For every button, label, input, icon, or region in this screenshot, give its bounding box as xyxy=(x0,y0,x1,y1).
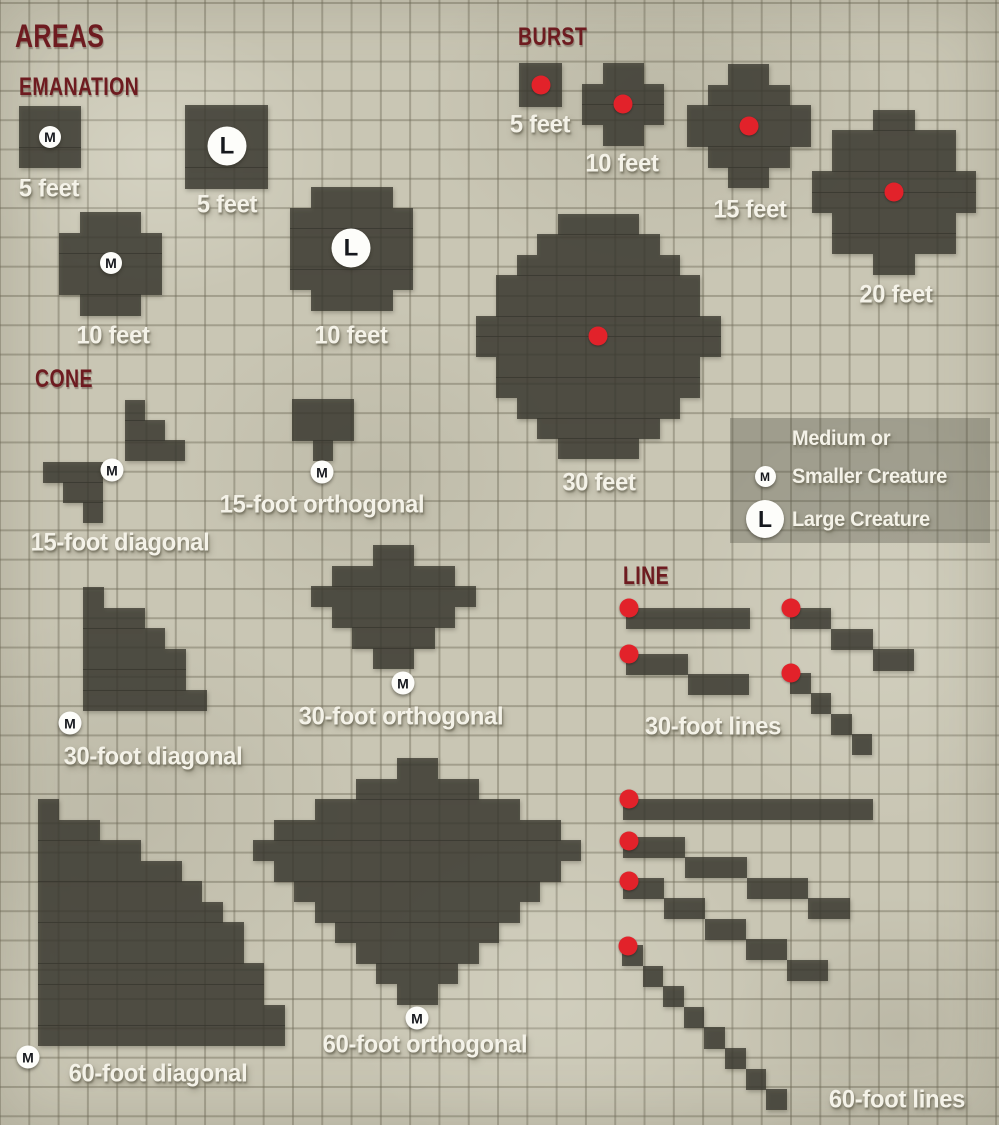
medium-creature-token-icon: M xyxy=(392,672,415,695)
section-header-areas: AREAS xyxy=(15,20,104,52)
cone-15ft-diagonal-lower-row xyxy=(83,502,103,523)
cone-30ft-diagonal-row xyxy=(83,649,186,670)
cone-60ft-diagonal-row xyxy=(38,943,244,964)
cone-60ft-orthogonal-row xyxy=(397,984,438,1005)
cone-30ft-orthogonal-label: 30-foot orthogonal xyxy=(299,705,504,730)
emanation-10ft-large-row xyxy=(290,269,413,290)
creature-size-legend: Medium or M Smaller Creature L Large Cre… xyxy=(730,418,990,543)
cone-15ft-diagonal-upper-row xyxy=(125,440,185,461)
medium-creature-token-icon: M xyxy=(17,1046,40,1069)
medium-creature-token-icon: M xyxy=(101,459,124,482)
emanation-10ft-medium-row xyxy=(80,294,142,315)
cone-60ft-orthogonal-row xyxy=(376,963,458,984)
line-60ft-stepped-3-row xyxy=(808,898,849,919)
emanation-10ft-large-row xyxy=(311,290,393,311)
cone-60ft-diagonal-row xyxy=(38,1005,285,1026)
burst-30ft-origin-dot-icon xyxy=(589,327,608,346)
burst-30ft-row xyxy=(496,357,700,378)
legend-row: M Smaller Creature xyxy=(730,458,990,495)
cone-30ft-diagonal-row xyxy=(83,669,186,690)
line-60ft-diagonal-row xyxy=(766,1089,787,1110)
large-creature-token-icon: L xyxy=(332,229,371,268)
emanation-5ft-medium-row xyxy=(19,106,81,127)
section-header-emanation: EMANATION xyxy=(19,75,139,100)
medium-creature-token-icon: M xyxy=(755,466,776,487)
cone-15ft-diagonal-upper-row xyxy=(125,420,165,441)
cone-15ft-diagonal-upper-row xyxy=(125,400,145,421)
cone-60ft-diagonal-row xyxy=(38,902,223,923)
emanation-10ft-large-row xyxy=(311,187,393,208)
line-30ft-double-step-row xyxy=(831,629,872,650)
cone-30ft-orthogonal-row xyxy=(332,607,456,628)
cone-30ft-diagonal-row xyxy=(83,690,207,711)
line-60ft-diagonal-row xyxy=(663,986,684,1007)
cone-60ft-diagonal-row xyxy=(38,984,264,1005)
lines-30ft-label: 30-foot lines xyxy=(645,715,781,740)
medium-creature-token-icon: M xyxy=(406,1007,429,1030)
burst-15ft-origin-dot-icon xyxy=(739,116,758,135)
burst-20ft-row xyxy=(832,213,956,234)
emanation-10ft-medium-row xyxy=(80,212,142,233)
burst-30ft-row xyxy=(517,255,680,276)
cone-15ft-orthogonal-row xyxy=(313,440,334,461)
section-header-cone: CONE xyxy=(35,367,93,392)
line-30ft-diagonal-origin-dot-icon xyxy=(782,664,801,683)
cone-60ft-orthogonal-row xyxy=(356,779,479,800)
legend-token-slot: L xyxy=(744,500,786,538)
large-creature-token-icon: L xyxy=(746,500,784,538)
burst-30ft-label: 30 feet xyxy=(562,471,635,496)
emanation-10ft-medium-row xyxy=(59,274,162,295)
cone-60ft-orthogonal-label: 60-foot orthogonal xyxy=(323,1033,528,1058)
line-30ft-diagonal-row xyxy=(811,693,832,714)
cone-60ft-orthogonal-row xyxy=(397,758,438,779)
line-60ft-diagonal-row xyxy=(684,1007,705,1028)
cone-60ft-orthogonal-row xyxy=(315,799,520,820)
cone-60ft-orthogonal-row xyxy=(356,943,479,964)
burst-30ft-row xyxy=(558,438,640,459)
line-60ft-stepped-3-row xyxy=(747,878,809,899)
cone-15ft-diagonal-lower-row xyxy=(63,482,103,503)
burst-15ft-row xyxy=(708,146,790,167)
cone-60ft-orthogonal-row xyxy=(274,861,561,882)
cone-30ft-orthogonal-row xyxy=(373,545,414,566)
line-60ft-stepped-2-row xyxy=(787,960,828,981)
emanation-5ft-large-row xyxy=(185,105,268,126)
burst-20ft-row xyxy=(832,130,956,151)
cone-60ft-orthogonal-row xyxy=(315,902,520,923)
line-60ft-stepped-3-row xyxy=(685,857,747,878)
cone-30ft-orthogonal-row xyxy=(373,648,414,669)
burst-20ft-row xyxy=(873,110,914,131)
medium-creature-token-icon: M xyxy=(59,712,82,735)
legend-row: Medium or xyxy=(730,418,990,458)
burst-15ft-row xyxy=(708,85,790,106)
section-header-burst: BURST xyxy=(518,25,587,50)
line-30ft-straight-row xyxy=(626,608,750,629)
cone-60ft-diagonal-row xyxy=(38,799,59,820)
emanation-5ft-large-row xyxy=(185,167,268,188)
burst-20ft-origin-dot-icon xyxy=(885,183,904,202)
medium-creature-token-icon: M xyxy=(39,126,61,148)
cone-30ft-diagonal-row xyxy=(83,628,165,649)
cone-30ft-diagonal-label: 30-foot diagonal xyxy=(64,745,243,770)
burst-15ft-row xyxy=(728,167,769,188)
burst-30ft-row xyxy=(537,418,659,439)
burst-15ft-label: 15 feet xyxy=(713,198,786,223)
medium-token-letter: M xyxy=(760,470,770,484)
large-creature-token-icon: L xyxy=(208,127,247,166)
cone-60ft-orthogonal-row xyxy=(253,840,581,861)
emanation-5ft-medium-row xyxy=(19,147,81,168)
cone-60ft-diagonal-row xyxy=(38,820,100,841)
burst-20ft-row xyxy=(873,254,914,275)
cone-60ft-diagonal-row xyxy=(38,963,264,984)
burst-10ft-label: 10 feet xyxy=(585,152,658,177)
legend-large-label: Large Creature xyxy=(792,509,930,530)
section-header-line: LINE xyxy=(623,564,669,589)
line-60ft-stepped-2-row xyxy=(664,898,705,919)
line-60ft-stepped-2-row xyxy=(746,939,787,960)
cone-30ft-orthogonal-row xyxy=(332,566,456,587)
cone-15ft-orthogonal-row xyxy=(292,399,354,420)
burst-30ft-row xyxy=(517,398,680,419)
burst-5ft-label: 5 feet xyxy=(510,113,570,138)
burst-5ft-origin-dot-icon xyxy=(531,75,550,94)
cone-15ft-orthogonal-row xyxy=(292,420,354,441)
burst-10ft-row xyxy=(603,63,644,84)
large-token-letter: L xyxy=(758,506,772,533)
line-60ft-stepped-2-row xyxy=(705,919,746,940)
cone-60ft-diagonal-row xyxy=(38,1025,285,1046)
line-30ft-straight-origin-dot-icon xyxy=(620,599,639,618)
emanation-5ft-medium-label: 5 feet xyxy=(19,177,79,202)
line-60ft-straight-origin-dot-icon xyxy=(620,790,639,809)
medium-creature-token-icon: M xyxy=(311,461,334,484)
cone-60ft-orthogonal-row xyxy=(274,820,561,841)
cone-60ft-diagonal-row xyxy=(38,861,182,882)
burst-30ft-row xyxy=(496,275,700,296)
cone-15ft-diagonal-label: 15-foot diagonal xyxy=(31,531,210,556)
burst-15ft-row xyxy=(728,64,769,85)
burst-20ft-label: 20 feet xyxy=(859,283,932,308)
cone-30ft-orthogonal-row xyxy=(352,627,434,648)
cone-30ft-orthogonal-row xyxy=(311,586,476,607)
legend-medium-label-line1: Medium or xyxy=(792,428,890,449)
burst-10ft-row xyxy=(603,125,644,146)
areas-of-effect-diagram: MLMLMMMMMM5 feet5 feet10 feet10 feet5 fe… xyxy=(0,0,999,1125)
burst-10ft-origin-dot-icon xyxy=(614,95,633,114)
line-60ft-stepped-2-origin-dot-icon xyxy=(620,872,639,891)
legend-medium-label-line2: Smaller Creature xyxy=(792,466,947,487)
line-60ft-diagonal-row xyxy=(746,1069,767,1090)
burst-20ft-row xyxy=(832,151,956,172)
emanation-5ft-large-label: 5 feet xyxy=(197,193,257,218)
burst-20ft-row xyxy=(832,233,956,254)
emanation-10ft-medium-row xyxy=(59,233,162,254)
legend-token-slot: M xyxy=(744,466,786,487)
line-30ft-diagonal-row xyxy=(852,734,873,755)
medium-creature-token-icon: M xyxy=(100,252,122,274)
line-30ft-diagonal-row xyxy=(831,714,852,735)
line-60ft-straight-row xyxy=(623,799,873,820)
cone-30ft-diagonal-row xyxy=(83,608,145,629)
cone-30ft-diagonal-row xyxy=(83,587,104,608)
line-60ft-diagonal-row xyxy=(643,966,664,987)
legend-row: L Large Creature xyxy=(730,495,990,543)
cone-60ft-diagonal-label: 60-foot diagonal xyxy=(69,1062,248,1087)
line-30ft-double-step-origin-dot-icon xyxy=(782,599,801,618)
burst-30ft-row xyxy=(558,214,640,235)
line-60ft-stepped-3-origin-dot-icon xyxy=(620,832,639,851)
line-60ft-diagonal-origin-dot-icon xyxy=(619,937,638,956)
emanation-10ft-large-label: 10 feet xyxy=(314,324,387,349)
cone-15ft-orthogonal-label: 15-foot orthogonal xyxy=(220,493,425,518)
line-60ft-diagonal-row xyxy=(704,1027,725,1048)
burst-30ft-row xyxy=(496,377,700,398)
burst-30ft-row xyxy=(537,234,659,255)
emanation-10ft-medium-label: 10 feet xyxy=(76,324,149,349)
cone-60ft-orthogonal-row xyxy=(294,881,540,902)
cone-60ft-diagonal-row xyxy=(38,881,202,902)
burst-30ft-row xyxy=(496,296,700,317)
line-60ft-diagonal-row xyxy=(725,1048,746,1069)
line-30ft-stepped-row xyxy=(688,674,750,695)
cone-60ft-diagonal-row xyxy=(38,922,244,943)
cone-60ft-orthogonal-row xyxy=(335,922,499,943)
lines-60ft-label: 60-foot lines xyxy=(829,1088,965,1113)
line-30ft-double-step-row xyxy=(873,649,914,670)
cone-15ft-diagonal-lower-row xyxy=(43,462,104,483)
line-30ft-stepped-origin-dot-icon xyxy=(620,645,639,664)
cone-60ft-diagonal-row xyxy=(38,840,141,861)
emanation-10ft-large-row xyxy=(290,208,413,229)
